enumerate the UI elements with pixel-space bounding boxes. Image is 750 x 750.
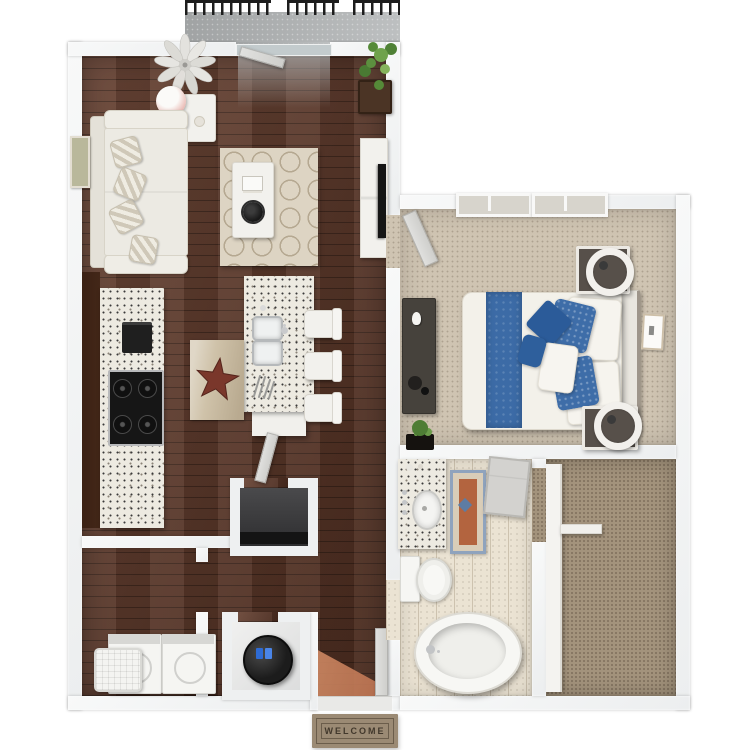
- bath-accent-rug: [450, 470, 486, 554]
- vanity-faucet: [402, 490, 407, 495]
- window-mullion: [564, 193, 567, 211]
- countertop-appliance: [122, 322, 152, 353]
- wall-art: [70, 136, 90, 188]
- plant-foliage: [366, 58, 376, 68]
- bedroom-window: [532, 193, 608, 217]
- bar-stool-back: [332, 392, 342, 424]
- bath-cabinet: [483, 456, 531, 518]
- balcony-railing: [287, 0, 339, 15]
- window-mullion: [488, 193, 491, 211]
- ring-lamp: [594, 402, 642, 450]
- tub-faucet: [426, 645, 435, 654]
- bedroom-door-opening: [386, 215, 400, 268]
- closet-shelving: [546, 464, 562, 692]
- floor-plan: WELCOME: [0, 0, 750, 750]
- closet-carpet: [546, 459, 676, 696]
- utensils: [248, 372, 278, 400]
- shared-wall-seg-a: [386, 42, 400, 215]
- throw-pillow: [128, 234, 159, 265]
- coffee-table: [232, 162, 274, 238]
- bath-closet-divider-a: [532, 459, 546, 468]
- welcome-mat: WELCOME: [312, 714, 398, 748]
- bird-figurine: [412, 312, 421, 325]
- bath-closet-divider-b: [532, 542, 546, 696]
- heater-valve: [256, 648, 263, 659]
- star-decor: [191, 354, 243, 406]
- ring-lamp: [586, 248, 634, 296]
- ring-lamp-bulb: [607, 415, 616, 424]
- vanity-sink: [412, 490, 442, 530]
- bed-runner: [486, 292, 522, 428]
- books: [242, 176, 263, 191]
- burner: [138, 415, 157, 434]
- dryer-panel: [162, 634, 214, 644]
- vanity-decor: [406, 464, 413, 471]
- bedroom-planter: [406, 434, 434, 450]
- ring-lamp-bulb: [599, 261, 608, 270]
- kitchen-cabinet-run: [82, 272, 100, 528]
- exterior-wall-bottom-right: [400, 696, 690, 710]
- bar-stool-back: [332, 308, 342, 340]
- sink-bowl: [252, 340, 283, 366]
- sink-bowl: [252, 316, 283, 341]
- closet-opening: [532, 468, 546, 542]
- closet-shelf-shadow: [240, 532, 308, 544]
- laundry-wall-right-a: [196, 548, 208, 562]
- shared-wall-seg-c: [386, 640, 400, 696]
- washer-panel: [108, 634, 160, 644]
- coat-closet: [230, 478, 318, 556]
- sofa-arm-top: [104, 110, 188, 130]
- decor-bowl: [243, 202, 263, 222]
- bar-stool-back: [332, 350, 342, 382]
- sink-drain: [422, 506, 427, 511]
- tv: [378, 164, 386, 238]
- front-door-threshold: [318, 696, 392, 711]
- balcony-railing: [353, 0, 400, 15]
- welcome-mat-text: WELCOME: [325, 726, 386, 736]
- balcony-railing: [185, 0, 271, 15]
- bedroom-window: [456, 193, 532, 217]
- bedroom-plant: [412, 420, 428, 436]
- laundry-basket: [94, 648, 142, 692]
- hall-wall: [310, 612, 318, 710]
- water-heater-closet-opening: [238, 612, 278, 622]
- dryer-door: [174, 652, 206, 684]
- laundry-wall-top: [82, 536, 230, 548]
- exterior-wall-right: [676, 195, 690, 710]
- soap-pump: [260, 305, 266, 311]
- toilet-bowl: [416, 558, 452, 602]
- burner: [138, 379, 157, 398]
- exterior-wall-bottom-b: [392, 696, 400, 710]
- island-faucet: [281, 327, 288, 334]
- burner: [113, 415, 132, 434]
- closet-shelf-bracket: [560, 524, 602, 534]
- table-decor: [194, 116, 205, 127]
- dresser-decor: [408, 376, 422, 390]
- wall-frame-art: [649, 326, 654, 335]
- bathtub-basin: [428, 623, 506, 679]
- burner: [113, 379, 132, 398]
- heater-valve: [265, 648, 272, 659]
- water-heater: [243, 635, 293, 685]
- bathroom-door-opening: [386, 580, 400, 640]
- plant-pot: [358, 80, 392, 114]
